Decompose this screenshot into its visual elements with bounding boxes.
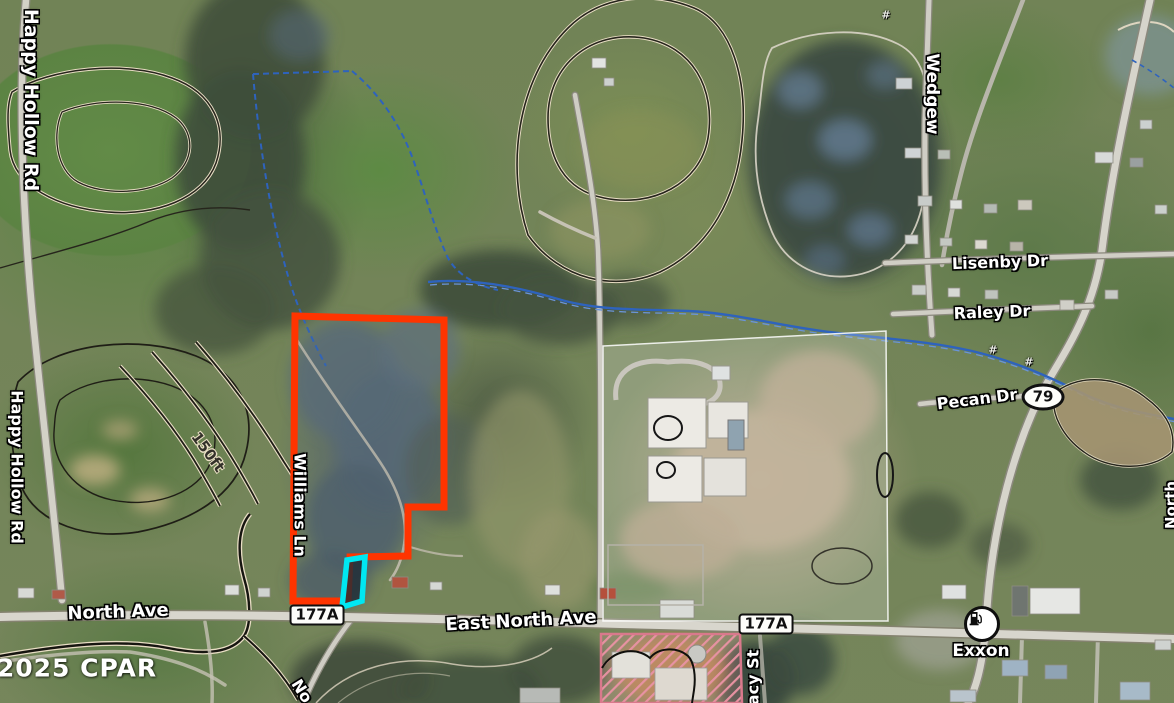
route-shield-177a-east: 177A [739,614,794,635]
highlighted-lot-outline[interactable] [342,557,365,607]
route-shield-177a-west: 177A [290,605,345,626]
hash-marker-2: # [988,344,997,357]
contour-lines-layer [0,0,1174,703]
zoning-hatch-area[interactable] [601,634,742,703]
selected-parcel-outline[interactable] [293,316,444,601]
map-viewport[interactable]: Happy Hollow Rd Happy Hollow Rd Wedgew L… [0,0,1174,703]
pond-contour [1054,380,1173,467]
gas-station-icon [964,606,1000,642]
hash-marker-1: # [881,9,890,22]
roads-layer [0,0,1174,703]
map-canvas[interactable] [0,0,1174,703]
route-shield-79: 79 [1022,384,1065,411]
hash-marker-3: # [1024,356,1033,369]
copyright-watermark: ©2025 CPAR [0,654,157,683]
gas-pump-glyph [967,609,985,627]
